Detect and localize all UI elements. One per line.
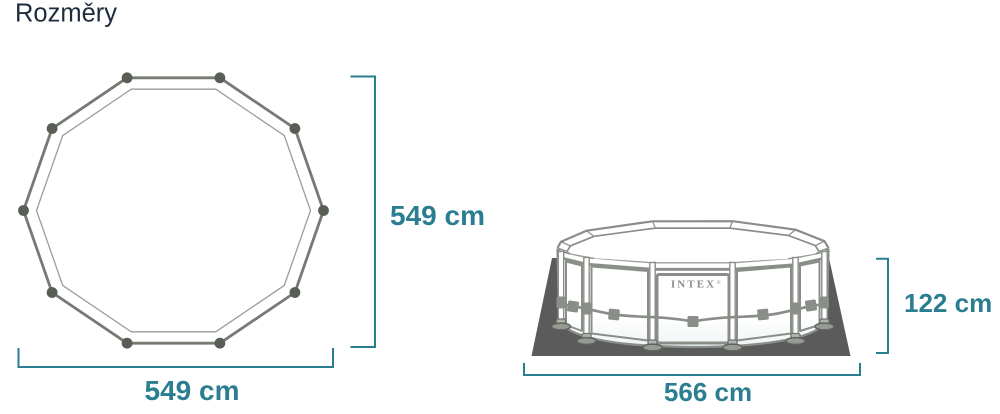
svg-text:Rozměry: Rozměry [15, 0, 117, 28]
svg-text:549 cm: 549 cm [390, 200, 485, 231]
svg-text:®: ® [717, 279, 721, 286]
svg-text:566 cm: 566 cm [664, 377, 752, 407]
svg-text:INTEX: INTEX [671, 279, 716, 291]
svg-text:122 cm: 122 cm [904, 288, 992, 318]
svg-text:549 cm: 549 cm [145, 375, 240, 406]
